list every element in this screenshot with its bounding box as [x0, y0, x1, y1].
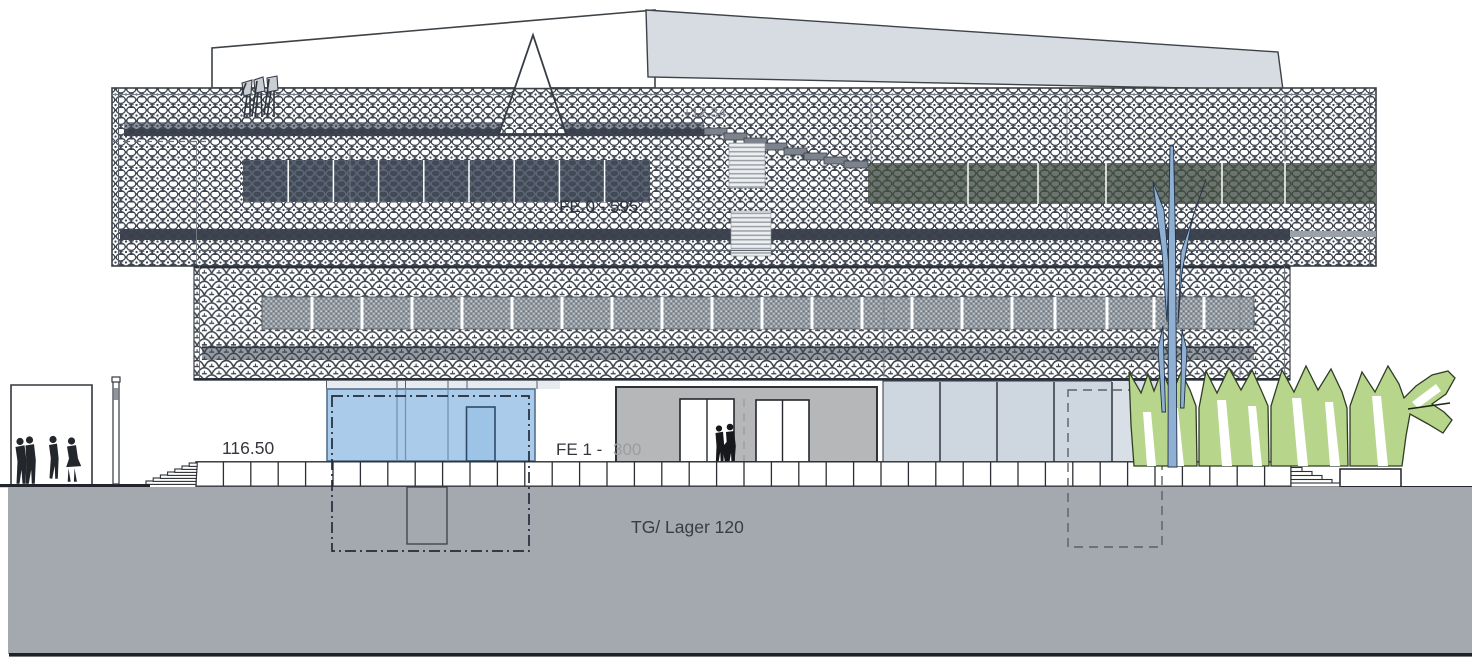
svg-text:FE 1 -: FE 1 - [556, 440, 602, 459]
svg-text:116.50: 116.50 [222, 438, 274, 458]
svg-text:TG/ Lager 120: TG/ Lager 120 [631, 517, 744, 537]
svg-text:300: 300 [613, 440, 641, 459]
svg-text:+12.34: +12.34 [683, 104, 726, 120]
svg-text:FE 0 - 595: FE 0 - 595 [559, 197, 638, 216]
